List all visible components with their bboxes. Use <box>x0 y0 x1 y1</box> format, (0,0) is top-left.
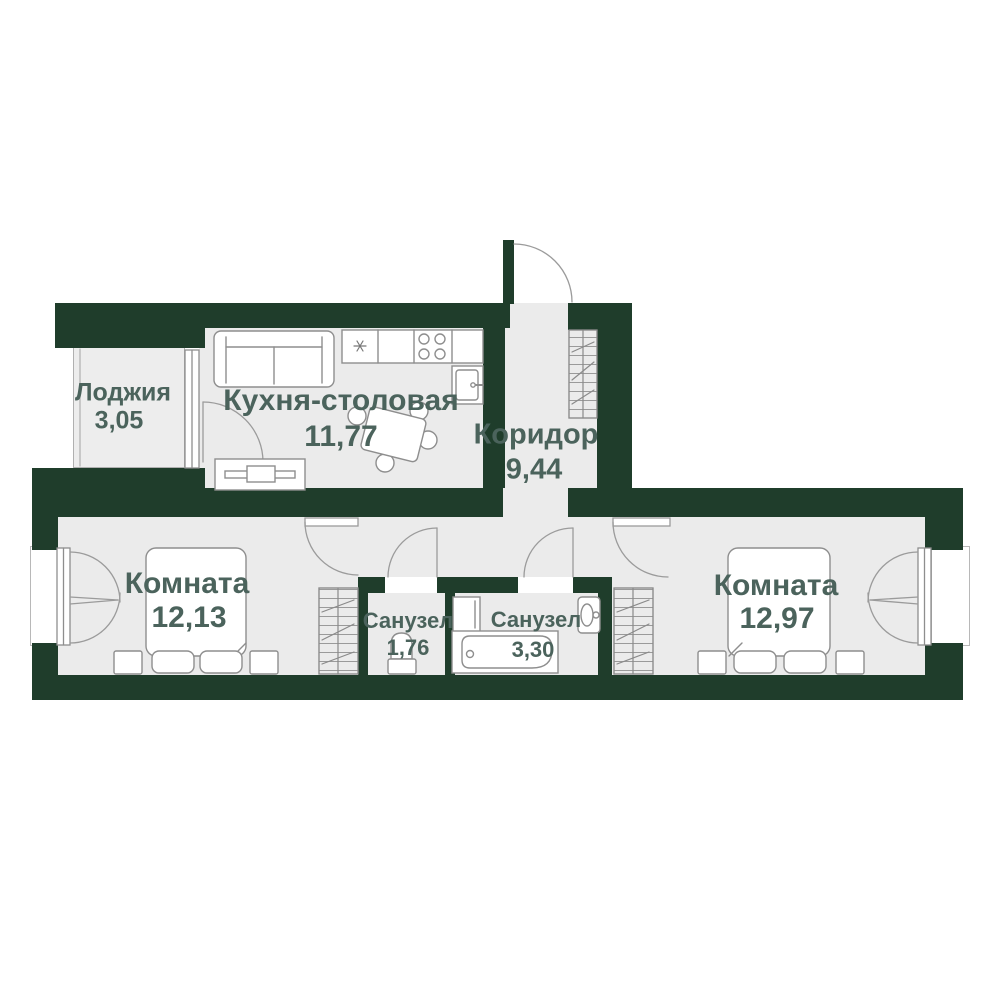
bathroom-sink <box>578 597 600 633</box>
sofa <box>214 331 334 387</box>
entry-door-arc <box>514 244 572 302</box>
room-name-bath-small: Санузел <box>363 610 453 632</box>
loggia-window <box>185 350 199 468</box>
room-name-room-right: Комната <box>714 571 839 601</box>
door-room-left <box>305 518 358 575</box>
room-area-bath-small: 1,76 <box>387 637 430 659</box>
door-bath-large <box>524 528 573 577</box>
room-area-loggia: 3,05 <box>95 409 144 434</box>
room-name-loggia: Лоджия <box>75 381 171 406</box>
pillow <box>734 651 776 673</box>
floor-plan: Лоджия 3,05 Кухня-столовая 11,77 Коридор… <box>0 0 1000 1000</box>
room-name-corridor: Коридор <box>474 421 599 450</box>
room-area-bath-large: 3,30 <box>512 639 555 661</box>
room-name-bath-large: Санузел <box>491 609 581 631</box>
room-area-room-left: 12,13 <box>151 603 226 633</box>
nightstand <box>114 651 142 674</box>
french-window-right <box>868 548 931 645</box>
wardrobe-room-right <box>614 588 653 674</box>
nightstand <box>698 651 726 674</box>
room-name-kitchen: Кухня-столовая <box>223 386 458 416</box>
room-area-room-right: 12,97 <box>739 604 814 634</box>
room-name-room-left: Комната <box>125 569 250 599</box>
room-area-kitchen: 11,77 <box>304 422 377 452</box>
nightstand <box>836 651 864 674</box>
room-area-corridor: 9,44 <box>506 456 562 485</box>
french-window-left <box>57 548 120 645</box>
washing-machine <box>453 597 480 632</box>
door-room-right <box>613 518 670 577</box>
pillow <box>200 651 242 673</box>
nightstand <box>250 651 278 674</box>
pillow <box>784 651 826 673</box>
plan-drawing <box>0 0 1000 1000</box>
wardrobe-corridor <box>569 330 597 418</box>
door-bath-small <box>388 528 437 577</box>
pillow <box>152 651 194 673</box>
wardrobe-room-left <box>319 588 358 674</box>
tv-stand <box>215 459 305 490</box>
